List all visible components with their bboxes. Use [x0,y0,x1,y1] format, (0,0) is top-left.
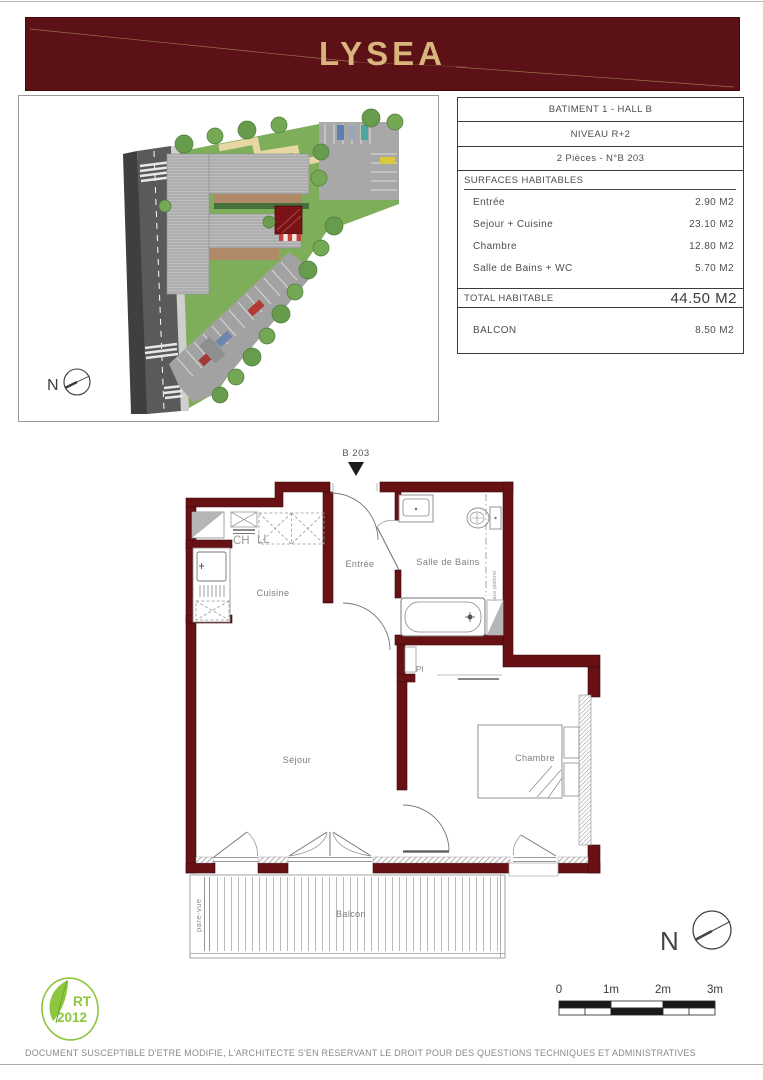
table-spacer [458,279,743,288]
site-plan-drawing: N [19,96,436,419]
unit-info-table: BATIMENT 1 - HALL B NIVEAU R+2 2 Pièces … [457,97,744,354]
north-compass: N [648,903,748,961]
surface-label: Salle de Bains + WC [473,263,695,274]
entrance-jambs [333,483,377,491]
page-bottom-border [0,1064,763,1065]
floor-plan-drawing: B 203 [175,437,625,982]
scale-segments [559,1001,715,1015]
surface-value: 12.80 M2 [689,241,734,252]
compass-circle-icon [693,911,731,949]
surfaces-title: SURFACES HABITABLES [464,172,736,190]
entry-arrow-icon [348,462,364,476]
bathroom-sink [399,495,433,522]
room-label-bathroom: Salle de Bains [416,557,479,567]
site-parking-north [319,122,399,200]
surface-label: Chambre [473,241,689,252]
scale-tick-1m: 1m [603,984,619,996]
scale-tick-2m: 2m [655,984,671,996]
floor-plan: B 203 [175,437,625,982]
boiler-unit [231,512,257,534]
surface-row: Salle de Bains + WC 5.70 M2 [458,257,743,279]
compass-label: N [660,926,679,956]
nightstand [564,727,579,758]
doors [331,493,449,852]
bathtub [401,598,485,636]
unit-entry-marker: B 203 [342,448,369,476]
balcony-row: BALCON 8.50 M2 [458,308,743,352]
bedroom-window-ledge [509,863,558,876]
balcony-value: 8.50 M2 [695,325,734,336]
privacy-screen-label: pare-vue [194,898,203,932]
closet: PI [405,647,424,674]
kitchen-fixtures: CH LL [192,512,324,622]
site-highlighted-unit [275,206,302,241]
bath-duct-shaft [487,600,503,635]
table-row-building: BATIMENT 1 - HALL B [458,98,743,122]
surface-value: 23.10 M2 [689,219,734,230]
room-label-bedroom: Chambre [515,753,555,763]
site-compass-label: N [47,377,59,394]
total-row: TOTAL HABITABLE 44.50 M2 [458,288,743,308]
scale-tick-0: 0 [556,984,562,996]
surface-label: Entrée [473,197,695,208]
balcony-label: BALCON [473,325,695,336]
surface-value: 5.70 M2 [695,263,734,274]
unit-label: B 203 [342,448,369,459]
site-plan-box: N [18,95,439,422]
total-label: TOTAL HABITABLE [464,293,670,304]
false-ceiling-label: faux plafond [492,571,498,601]
disclaimer-text: DOCUMENT SUSCEPTIBLE D'ETRE MODIFIE, L'A… [25,1048,735,1058]
room-label-entry: Entrée [346,559,375,569]
rt-label: RT [73,994,92,1009]
rt-year-label: 2012 [57,1010,87,1025]
table-row-level: NIVEAU R+2 [458,122,743,147]
window-sills [196,857,588,863]
site-compass: N [47,369,90,395]
plan-sheet: LYSEA [0,0,763,1080]
surface-row: Chambre 12.80 M2 [458,235,743,257]
rt2012-logo: RT 2012 [36,973,108,1047]
total-value: 44.50 M2 [670,290,737,307]
surface-row: Entrée 2.90 M2 [458,191,743,213]
closet-label: PI [416,665,424,674]
surface-row: Sejour + Cuisine 23.10 M2 [458,213,743,235]
scale-labels: 0 1m 2m 3m [556,984,723,996]
scale-tick-3m: 3m [707,984,723,996]
duct-shaft [192,512,224,538]
room-label-kitchen: Cuisine [257,588,290,598]
page-title: LYSEA [26,18,739,90]
bedroom-window-strip [579,695,591,845]
surface-value: 2.90 M2 [695,197,734,208]
washer-label: LL [257,534,270,546]
room-label-balcony: Balcon [336,909,366,919]
header-banner: LYSEA [25,17,740,91]
scale-bar: 0 1m 2m 3m [550,981,725,1029]
page-top-border [0,1,763,2]
toilet [467,507,501,529]
kitchen-sink [193,548,230,622]
surfaces-title-row: SURFACES HABITABLES [458,171,743,191]
bedroom-furniture [437,675,579,798]
boiler-label: CH [233,535,250,547]
surface-label: Sejour + Cuisine [473,219,689,230]
nightstand [564,763,579,796]
table-row-unit: 2 Pièces - N°B 203 [458,147,743,171]
room-label-living: Séjour [283,755,311,765]
